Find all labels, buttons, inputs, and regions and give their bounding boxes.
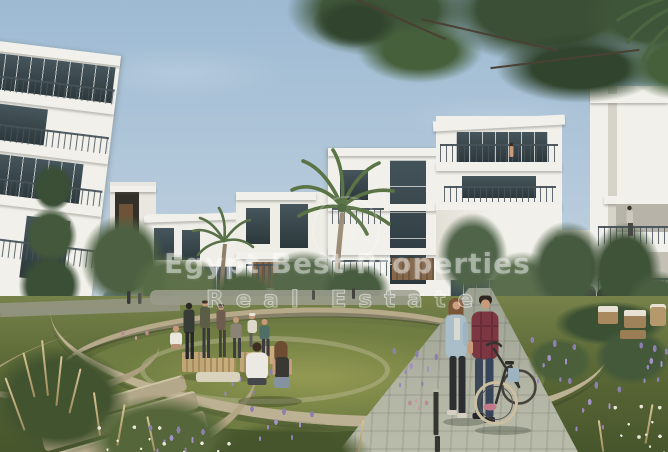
man-maroon-shirt xyxy=(468,296,499,424)
person-sitting-teal xyxy=(260,319,270,356)
person-sitting-white-top xyxy=(170,326,182,349)
path-bollard xyxy=(434,389,441,452)
woman-denim-jacket xyxy=(446,298,469,418)
watermark-line1: Egypt Best Properties xyxy=(164,247,584,280)
lawn-gathering-group xyxy=(170,301,292,389)
person-sitting-cap xyxy=(248,313,258,347)
render-image: Egypt Best Properties Real Estate xyxy=(0,0,668,452)
balcony-figures xyxy=(510,143,634,236)
balcony-person-right xyxy=(627,206,634,236)
watermark-line2: Real Estate xyxy=(206,287,485,313)
balcony-person-center xyxy=(510,143,514,157)
woman-sitting-back-dark-top xyxy=(273,341,293,388)
path-couple-group xyxy=(434,296,536,452)
person-sitting-gray xyxy=(231,317,242,358)
person-standing-dark xyxy=(184,303,195,359)
